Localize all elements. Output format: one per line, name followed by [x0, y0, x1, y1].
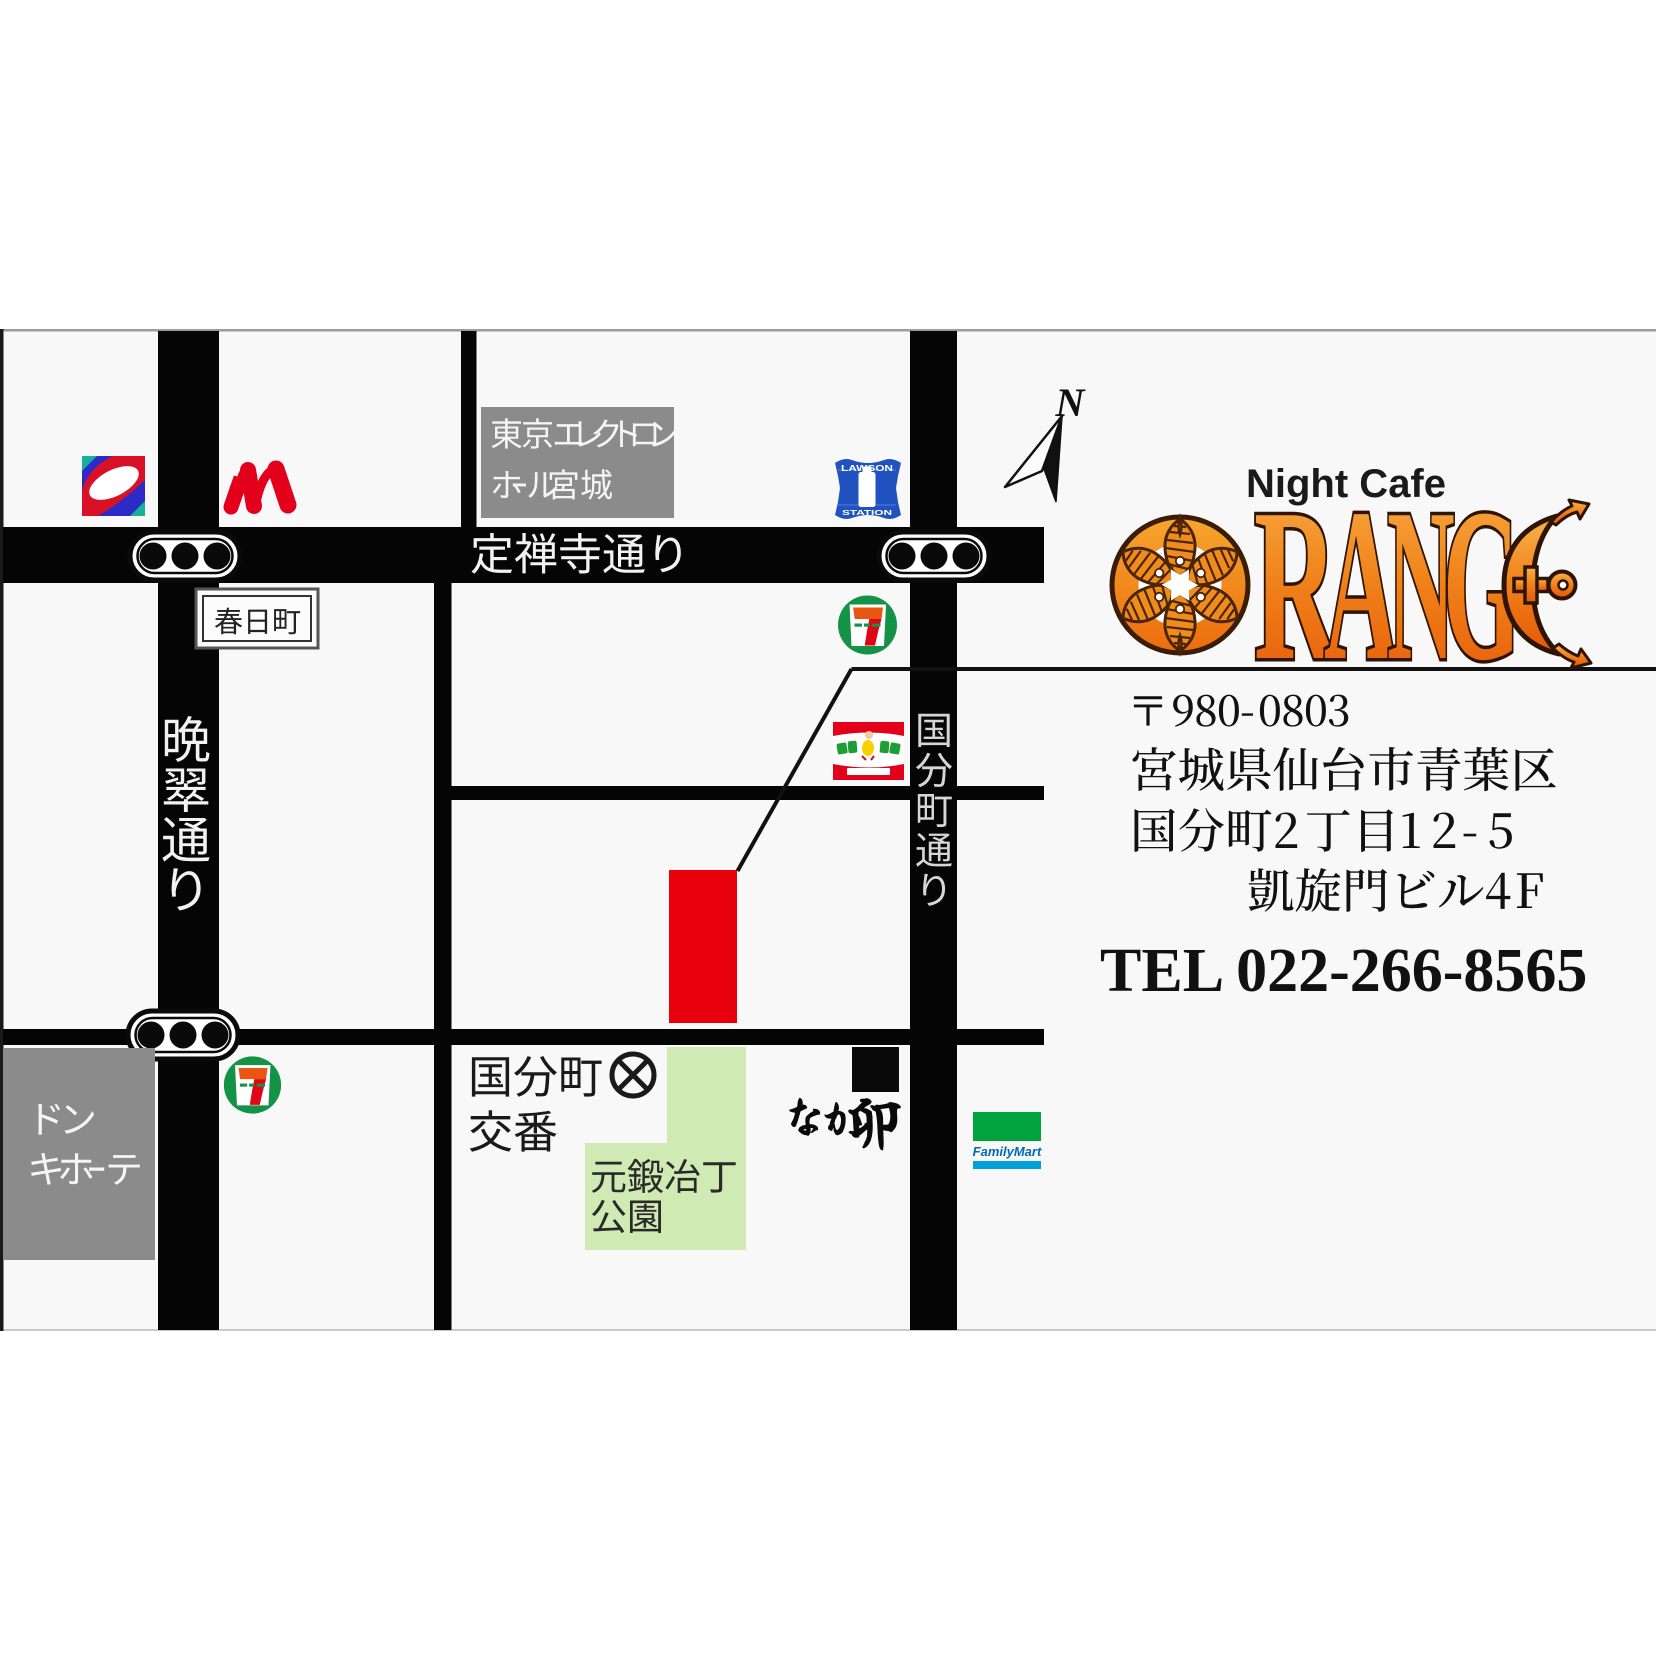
svg-text:STATION: STATION	[842, 508, 892, 517]
svg-text:N: N	[1055, 380, 1087, 425]
svg-text:LAWSON: LAWSON	[841, 463, 893, 473]
svg-text:TEL 022-266-8565: TEL 022-266-8565	[1100, 937, 1587, 1005]
svg-text:FamilyMart: FamilyMart	[973, 1144, 1042, 1159]
